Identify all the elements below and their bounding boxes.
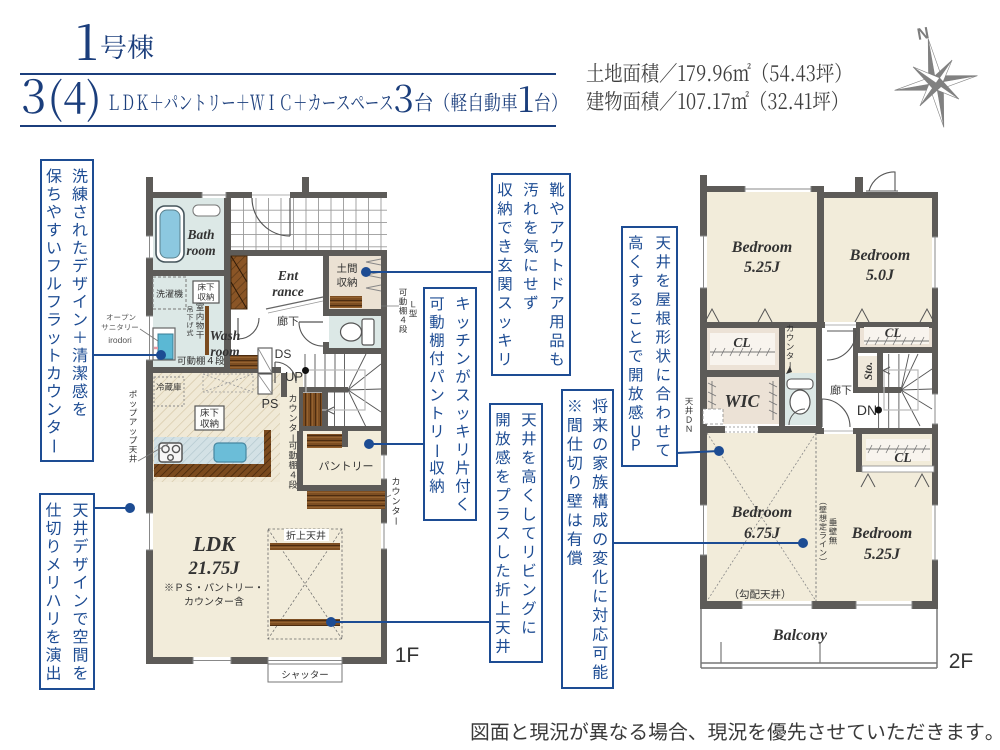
svg-text:5.25J: 5.25J	[864, 546, 901, 563]
svg-text:room: room	[186, 243, 215, 258]
svg-text:5.25J: 5.25J	[744, 259, 781, 276]
svg-text:LDK: LDK	[192, 532, 237, 556]
svg-text:room: room	[210, 344, 239, 359]
svg-text:WIC: WIC	[724, 391, 760, 411]
svg-text:Sto.: Sto.	[863, 362, 875, 380]
svg-text:Bedroom: Bedroom	[731, 504, 792, 521]
svg-text:2F: 2F	[949, 650, 974, 673]
svg-text:Wash: Wash	[210, 328, 241, 343]
svg-text:PS: PS	[262, 397, 279, 411]
svg-text:1F: 1F	[395, 644, 420, 667]
svg-text:rance: rance	[272, 284, 304, 299]
svg-text:5.0J: 5.0J	[866, 267, 895, 284]
svg-text:DN: DN	[857, 402, 877, 418]
svg-text:21.75J: 21.75J	[188, 559, 241, 579]
svg-text:CL: CL	[885, 325, 902, 340]
svg-text:UP: UP	[285, 369, 303, 384]
svg-text:CL: CL	[733, 335, 750, 350]
svg-text:Bath: Bath	[186, 227, 214, 242]
svg-text:irodori: irodori	[108, 335, 132, 345]
svg-text:Ent: Ent	[277, 268, 300, 283]
svg-text:Bedroom: Bedroom	[849, 247, 910, 264]
svg-text:Balcony: Balcony	[772, 627, 828, 644]
svg-text:CL: CL	[894, 450, 911, 465]
svg-text:DS: DS	[275, 347, 292, 361]
svg-text:6.75J: 6.75J	[744, 525, 781, 542]
svg-text:Bedroom: Bedroom	[851, 525, 912, 542]
svg-text:Bedroom: Bedroom	[731, 239, 792, 256]
